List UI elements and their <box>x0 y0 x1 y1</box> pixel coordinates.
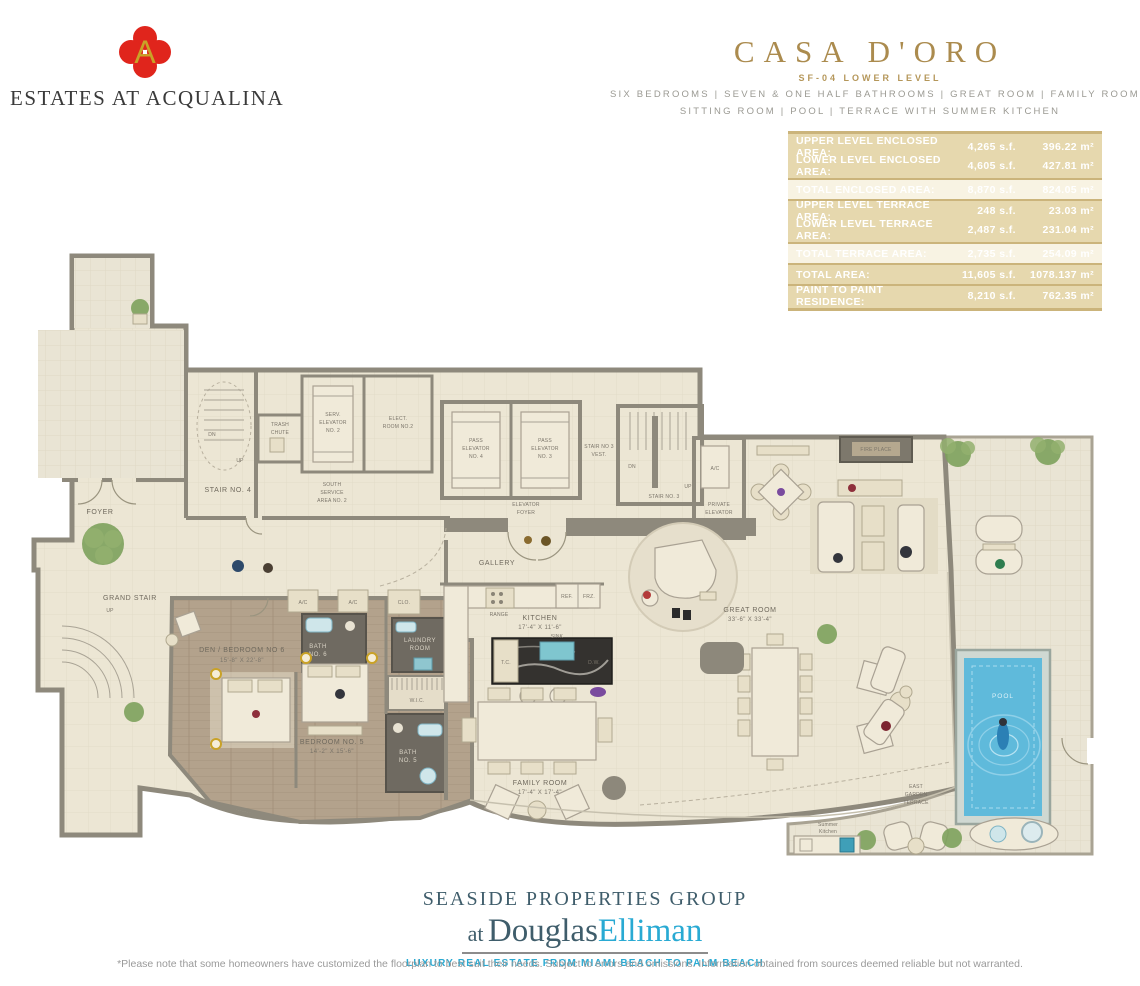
row-sf: 248 s.f. <box>954 205 1016 217</box>
brochure-page: A ESTATES AT ACQUALINA CASA D'ORO SF-04 … <box>0 0 1140 986</box>
stair4-label: STAIR NO. 4 <box>205 487 252 494</box>
douglas-elliman-wordmark: at DouglasElliman <box>462 913 709 954</box>
row-sqm: 427.81 m² <box>1016 160 1094 172</box>
terrace-label: TERRACE <box>903 800 929 806</box>
row-sf: 8,870 s.f. <box>954 184 1016 196</box>
plan-subtitle: SF-04 LOWER LEVEL <box>610 73 1130 83</box>
pass-elev3-label: PASS <box>538 438 552 444</box>
table-row: LOWER LEVEL TERRACE AREA: 2,487 s.f. 231… <box>788 220 1102 239</box>
dw-label: D.W. <box>588 660 600 666</box>
serv-elev-label: SERV. <box>325 412 340 418</box>
spa <box>970 818 1058 850</box>
serv-elev-label: NO. 2 <box>326 428 340 434</box>
stair3-label: STAIR NO. 3 <box>648 494 679 500</box>
page-title: CASA D'ORO <box>610 34 1130 70</box>
pass-elev3-label: ELEVATOR <box>531 446 559 452</box>
row-label: LOWER LEVEL ENCLOSED AREA: <box>796 154 954 178</box>
frz-label: FRZ. <box>583 594 595 600</box>
pass-elev4-label: PASS <box>469 438 483 444</box>
row-sf: 2,487 s.f. <box>954 224 1016 236</box>
elect-label: ROOM NO.2 <box>383 424 413 430</box>
serv-elev-label: ELEVATOR <box>319 420 347 426</box>
west-balcony <box>38 330 184 478</box>
elev-foyer-label: ELEVATOR <box>512 502 540 508</box>
den6-dims: 15'-8" X 22'-8" <box>220 658 264 664</box>
stair4-up-label: UP <box>236 458 244 464</box>
bath-5: BATH NO. 5 <box>386 714 446 792</box>
private-elev-label: ELEVATOR <box>705 510 733 516</box>
bed5-dims: 14'-2" X 15'-6" <box>310 749 354 755</box>
row-label: LOWER LEVEL TERRACE AREA: <box>796 218 954 242</box>
row-sqm: 824.05 m² <box>1016 184 1094 196</box>
wordmark-douglas: Douglas <box>488 913 598 949</box>
family-room-label: FAMILY ROOM <box>513 780 568 787</box>
acqualina-logo-block: A ESTATES AT ACQUALINA <box>10 24 280 111</box>
terrace-loungers-upper <box>976 516 1022 574</box>
trash-label: TRASH <box>271 422 289 428</box>
features-line-1: SIX BEDROOMS | SEVEN & ONE HALF BATHROOM… <box>610 89 1130 100</box>
fireplace-label: FIRE PLACE <box>860 447 892 453</box>
sink-label: SINK <box>551 634 564 640</box>
foyer-palm <box>82 523 124 565</box>
passenger-elevators: PASS ELEVATOR NO. 4 PASS ELEVATOR NO. 3 <box>442 402 580 498</box>
bath6-label: BATH <box>309 644 327 650</box>
elev-foyer-label: FOYER <box>517 510 535 516</box>
row-label: TOTAL ENCLOSED AREA: <box>796 184 954 196</box>
wordmark-at: at <box>468 921 484 946</box>
table-row: LOWER LEVEL ENCLOSED AREA: 4,605 s.f. 42… <box>788 156 1102 175</box>
brand-name: ESTATES AT ACQUALINA <box>10 86 280 111</box>
great-room-dims: 33'-6" X 33'-4" <box>728 617 772 623</box>
stair3-up-label: UP <box>684 484 692 490</box>
bath5-label: BATH <box>399 750 417 756</box>
quatrefoil-logo-icon: A <box>118 24 172 80</box>
dining-table <box>478 702 596 760</box>
foyer-label: FOYER <box>86 509 113 516</box>
grand-stair-label: GRAND STAIR <box>103 595 157 602</box>
wic-label: W.I.C. <box>410 698 425 704</box>
pool: POOL <box>956 650 1050 824</box>
pass-elev3-label: NO. 3 <box>538 454 552 460</box>
terrace-label: EAST <box>909 784 923 790</box>
kitchen-label: KITCHEN <box>523 615 558 622</box>
south-service-label: SOUTH <box>323 482 342 488</box>
wordmark-elliman: Elliman <box>598 913 702 949</box>
floorplan: DN UP STAIR NO. 4 TRASH CHUTE SERV. ELEV… <box>0 240 1140 890</box>
potted-plant <box>131 299 149 324</box>
footer-brand-block: SEASIDE PROPERTIES GROUP at DouglasEllim… <box>400 888 770 969</box>
trash-label: CHUTE <box>271 430 290 436</box>
table-row-total: TOTAL ENCLOSED AREA: 8,870 s.f. 824.05 m… <box>788 178 1102 199</box>
ottoman <box>700 642 744 674</box>
great-room-label: GREAT ROOM <box>723 607 776 614</box>
seaside-properties-label: SEASIDE PROPERTIES GROUP <box>400 888 770 911</box>
ac-label: A/C <box>349 600 358 606</box>
foyer-decor <box>263 563 273 573</box>
logo-monogram: A <box>134 34 156 70</box>
stair3-dn-label: DN <box>628 464 636 470</box>
gallery-label: GALLERY <box>479 560 515 567</box>
tc-label: T.C. <box>501 660 511 666</box>
disclaimer-text: *Please note that some homeowners have c… <box>0 958 1140 970</box>
elect-label: ELECT. <box>389 416 407 422</box>
bath-6: BATH NO. 6 <box>302 614 366 672</box>
den6-label: DEN / BEDROOM NO 6 <box>199 647 285 654</box>
planter <box>602 776 626 800</box>
grand-stair-up-label: UP <box>106 608 114 614</box>
wic: W.I.C. <box>388 676 446 710</box>
ac-label: A/C <box>299 600 308 606</box>
swimmer <box>997 722 1009 750</box>
pass-elev4-label: NO. 4 <box>469 454 483 460</box>
plan-title-block: CASA D'ORO SF-04 LOWER LEVEL SIX BEDROOM… <box>610 34 1130 117</box>
kitchen-dims: 17'-4" X 11'-6" <box>518 625 561 631</box>
laundry-label: ROOM <box>410 646 431 652</box>
bath5-label: NO. 5 <box>399 758 417 764</box>
row-sf: 4,605 s.f. <box>954 160 1016 172</box>
row-sqm: 231.04 m² <box>1016 224 1094 236</box>
features-line-2: SITTING ROOM | POOL | TERRACE WITH SUMME… <box>610 106 1130 117</box>
pass-elev4-label: ELEVATOR <box>462 446 490 452</box>
summer-kitchen-label: Kitchen <box>819 829 837 835</box>
terrace-label: GARDEN <box>905 792 928 798</box>
pool-label: POOL <box>992 693 1014 700</box>
sofa <box>898 505 924 571</box>
closet-label: CLO. <box>398 600 410 606</box>
foyer-decor <box>232 560 244 572</box>
bed5-label: BEDROOM NO. 5 <box>300 739 364 746</box>
row-sf: 4,265 s.f. <box>954 141 1016 153</box>
row-sqm: 23.03 m² <box>1016 205 1094 217</box>
stair3-vest-label: VEST. <box>592 452 607 458</box>
stair3-vest-label: STAIR NO 3 <box>584 444 613 450</box>
ref-label: REF. <box>561 594 573 600</box>
grand-piano <box>629 523 737 631</box>
row-sqm: 396.22 m² <box>1016 141 1094 153</box>
laundry-room: LAUNDRY ROOM <box>392 618 446 672</box>
summer-kitchen-label: Summer <box>818 822 838 828</box>
range-label: RANGE <box>490 612 509 618</box>
bedroom-closets: A/C A/C CLO. <box>288 590 420 614</box>
south-service-label: SERVICE <box>320 490 344 496</box>
south-service-label: AREA NO. 2 <box>317 498 347 504</box>
ac-label: A/C <box>711 466 720 472</box>
laundry-label: LAUNDRY <box>404 638 436 644</box>
private-elev-label: PRIVATE <box>708 502 731 508</box>
stair4-dn-label: DN <box>208 432 216 438</box>
